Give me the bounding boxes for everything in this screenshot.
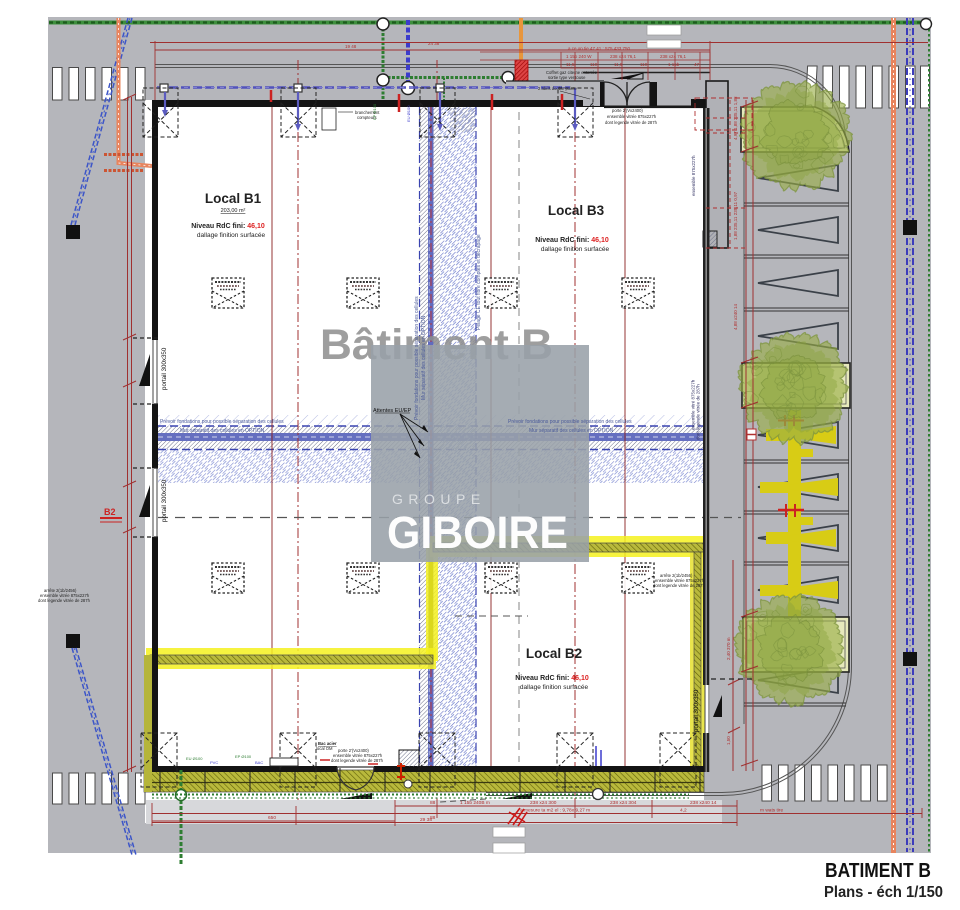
- svg-text:local OM: local OM: [316, 746, 333, 751]
- svg-text:Mur séparatif des cellules en: Mur séparatif des cellules en OPTION: [180, 428, 265, 434]
- svg-text:4,97 1,88 235,11 1,88: 4,97 1,88 235,11 1,88: [733, 96, 738, 140]
- svg-text:29 38: 29 38: [420, 817, 432, 823]
- svg-text:238 x24 304: 238 x24 304: [610, 800, 637, 806]
- svg-text:Prévoir fondations pour possib: Prévoir fondations pour possible séparat…: [508, 419, 632, 425]
- svg-text:203,00 m²: 203,00 m²: [221, 208, 246, 214]
- svg-text:Prévoir fondations pour possib: Prévoir fondations pour possible séparat…: [160, 419, 284, 425]
- svg-text:a mesure ta m2 el : 9,78x 9: a mesure ta m2 el : 9,78x 9,27 m: [520, 808, 590, 814]
- svg-text:sortie type ventouse: sortie type ventouse: [548, 75, 586, 80]
- svg-text:88: 88: [430, 800, 436, 806]
- svg-text:4,88 x240 14: 4,88 x240 14: [733, 303, 738, 330]
- svg-text:1,88 235,11 235,11 0,97: 1,88 235,11 235,11 0,97: [733, 191, 738, 240]
- svg-text:Pelage CE tout fibre comptes e: Pelage CE tout fibre comptes et décrapag…: [476, 234, 482, 330]
- svg-text:11,5: 11,5: [614, 62, 623, 67]
- svg-text:dont legende vitrée de 287h: dont legende vitrée de 287h: [38, 598, 91, 603]
- svg-text:Prévoir fondations pour possib: Prévoir fondations pour possible séparat…: [414, 296, 420, 420]
- svg-text:2 abris double pointe: 2 abris double pointe: [538, 86, 578, 91]
- svg-text:dallage finition surfacée: dallage finition surfacée: [520, 684, 589, 691]
- svg-text:portail 300x350: portail 300x350: [693, 689, 700, 732]
- svg-text:1 15b 240B m: 1 15b 240B m: [460, 800, 490, 806]
- svg-text:1,50: 1,50: [726, 736, 731, 745]
- svg-text:dont legende vitrée de 287h: dont legende vitrée de 287h: [331, 758, 384, 763]
- svg-text:dallage finition surfacée: dallage finition surfacée: [197, 232, 266, 239]
- svg-text:238 x240 14: 238 x240 14: [690, 800, 717, 806]
- svg-text:650: 650: [268, 815, 276, 821]
- svg-text:238 x24 76,1: 238 x24 76,1: [610, 54, 637, 59]
- svg-text:EU Ø100: EU Ø100: [186, 756, 203, 761]
- svg-text:110: 110: [590, 62, 598, 67]
- svg-text:47: 47: [694, 62, 700, 67]
- svg-text:ensemble vitrée 875x227h: ensemble vitrée 875x227h: [607, 114, 657, 119]
- svg-text:24 38: 24 38: [428, 41, 440, 46]
- svg-text:BATIMENT B: BATIMENT B: [825, 860, 931, 882]
- svg-text:EP Ø100: EP Ø100: [235, 754, 252, 759]
- svg-text:Local B3: Local B3: [548, 203, 605, 218]
- svg-text:Niveau RdC fini: 46,10: Niveau RdC fini: 46,10: [515, 675, 589, 682]
- svg-text:238 x24 300: 238 x24 300: [530, 800, 557, 806]
- svg-text:Niveau RdC fini: 46,10: Niveau RdC fini: 46,10: [191, 223, 265, 230]
- svg-text:GROUPE: GROUPE: [392, 491, 486, 507]
- svg-text:dont legende vitrée de 287h: dont legende vitrée de 287h: [696, 384, 701, 440]
- svg-text:11,5: 11,5: [566, 62, 575, 67]
- svg-text:Niveau RdC fini: 46,10: Niveau RdC fini: 46,10: [535, 237, 609, 244]
- svg-text:Local B2: Local B2: [526, 646, 582, 661]
- svg-text:dont legende vitrée de 287h: dont legende vitrée de 287h: [653, 583, 706, 588]
- svg-text:ensemble 875x227h: ensemble 875x227h: [691, 155, 696, 196]
- svg-text:110: 110: [640, 62, 648, 67]
- svg-text:BAC: BAC: [255, 760, 263, 765]
- svg-text:a ce on tie 47,41 : 575 433: a ce on tie 47,41 : 575 433,750: [568, 46, 631, 51]
- svg-text:PVC: PVC: [210, 760, 218, 765]
- svg-text:2,40 370 m: 2,40 370 m: [726, 637, 731, 660]
- svg-text:dont legende vitrée de 287h: dont legende vitrée de 287h: [605, 120, 658, 125]
- svg-text:m wats tire: m wats tire: [760, 808, 784, 814]
- svg-text:19 48: 19 48: [345, 44, 357, 49]
- svg-text:1 15b 240 W: 1 15b 240 W: [566, 54, 592, 59]
- svg-text:Mur séparatif des cellules en: Mur séparatif des cellules en OPTION: [421, 315, 427, 400]
- svg-text:EU Ø100: EU Ø100: [406, 105, 411, 122]
- svg-text:Plans - éch 1/150: Plans - éch 1/150: [824, 884, 943, 901]
- svg-text:EP Ø100: EP Ø100: [372, 103, 377, 120]
- svg-text:Mur séparatif des cellules en: Mur séparatif des cellules en OPTION: [529, 428, 614, 434]
- svg-text:dallage finition surfacée: dallage finition surfacée: [541, 246, 610, 253]
- svg-text:porte 2'(Vx2400): porte 2'(Vx2400): [612, 108, 643, 113]
- svg-text:portail 300x350: portail 300x350: [161, 347, 168, 390]
- svg-text:portail 300x350: portail 300x350: [161, 479, 168, 522]
- svg-text:B2: B2: [104, 507, 116, 517]
- svg-text:GIBOIRE: GIBOIRE: [387, 507, 568, 558]
- svg-text:238 x24 76,1: 238 x24 76,1: [660, 54, 687, 59]
- svg-text:Local B1: Local B1: [205, 191, 262, 206]
- svg-text:4,2: 4,2: [680, 808, 687, 814]
- svg-text:1 15b: 1 15b: [668, 62, 680, 67]
